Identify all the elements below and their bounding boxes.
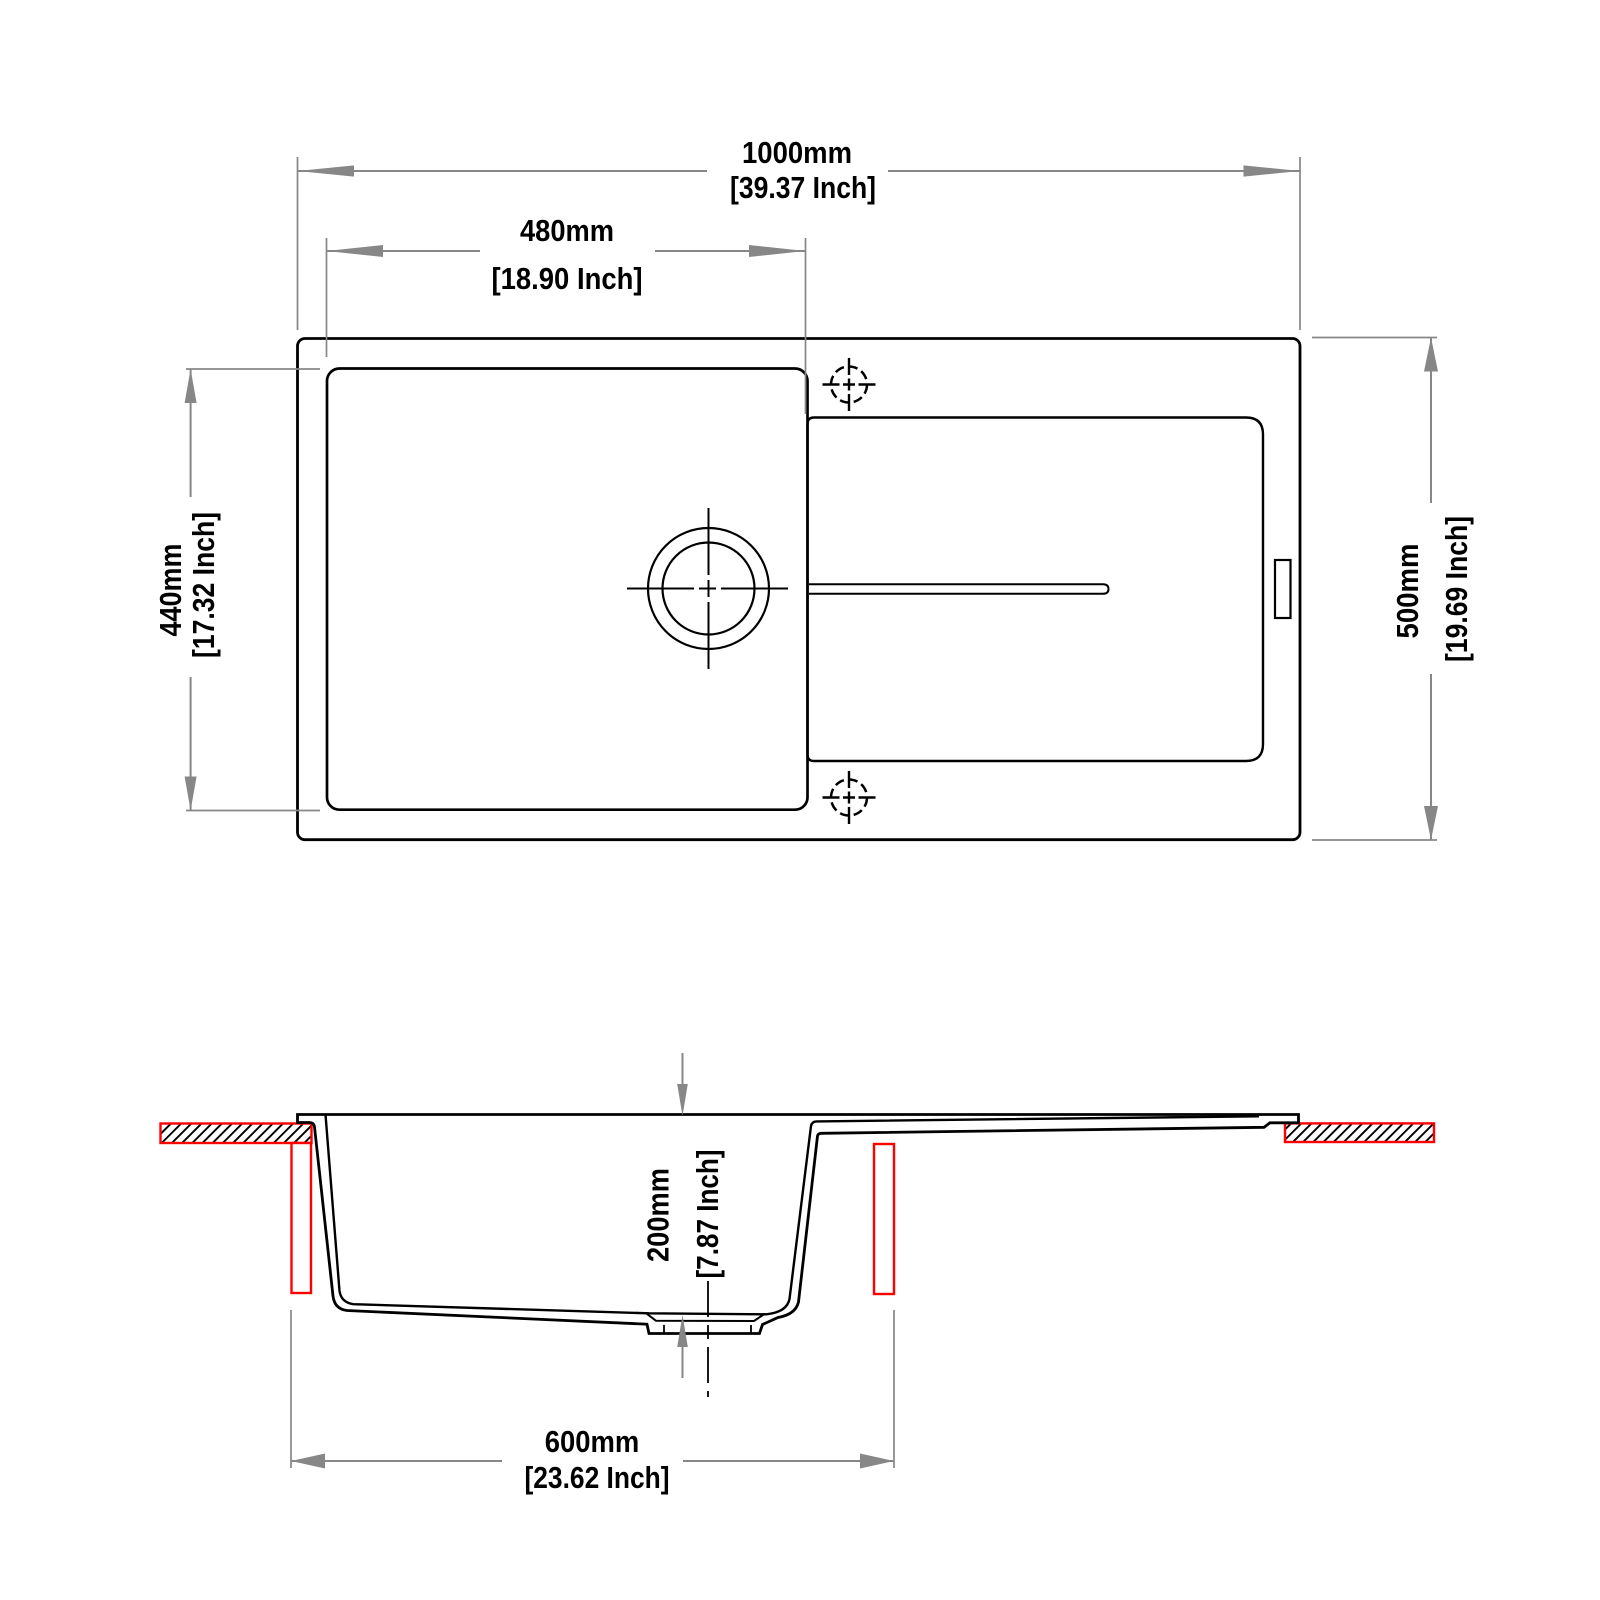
svg-text:1000mm: 1000mm: [742, 135, 852, 170]
svg-text:[7.87 Inch]: [7.87 Inch]: [690, 1150, 725, 1279]
svg-text:[39.37 Inch]: [39.37 Inch]: [730, 170, 876, 205]
svg-text:200mm: 200mm: [641, 1168, 676, 1262]
svg-text:440mm: 440mm: [153, 544, 188, 637]
svg-text:480mm: 480mm: [520, 213, 614, 248]
svg-text:[19.69 Inch]: [19.69 Inch]: [1439, 516, 1474, 662]
svg-text:[18.90 Inch]: [18.90 Inch]: [492, 261, 643, 296]
svg-text:[17.32 Inch]: [17.32 Inch]: [186, 512, 221, 658]
svg-text:600mm: 600mm: [545, 1424, 640, 1459]
svg-text:[23.62 Inch]: [23.62 Inch]: [525, 1460, 670, 1495]
svg-text:500mm: 500mm: [1390, 544, 1425, 639]
